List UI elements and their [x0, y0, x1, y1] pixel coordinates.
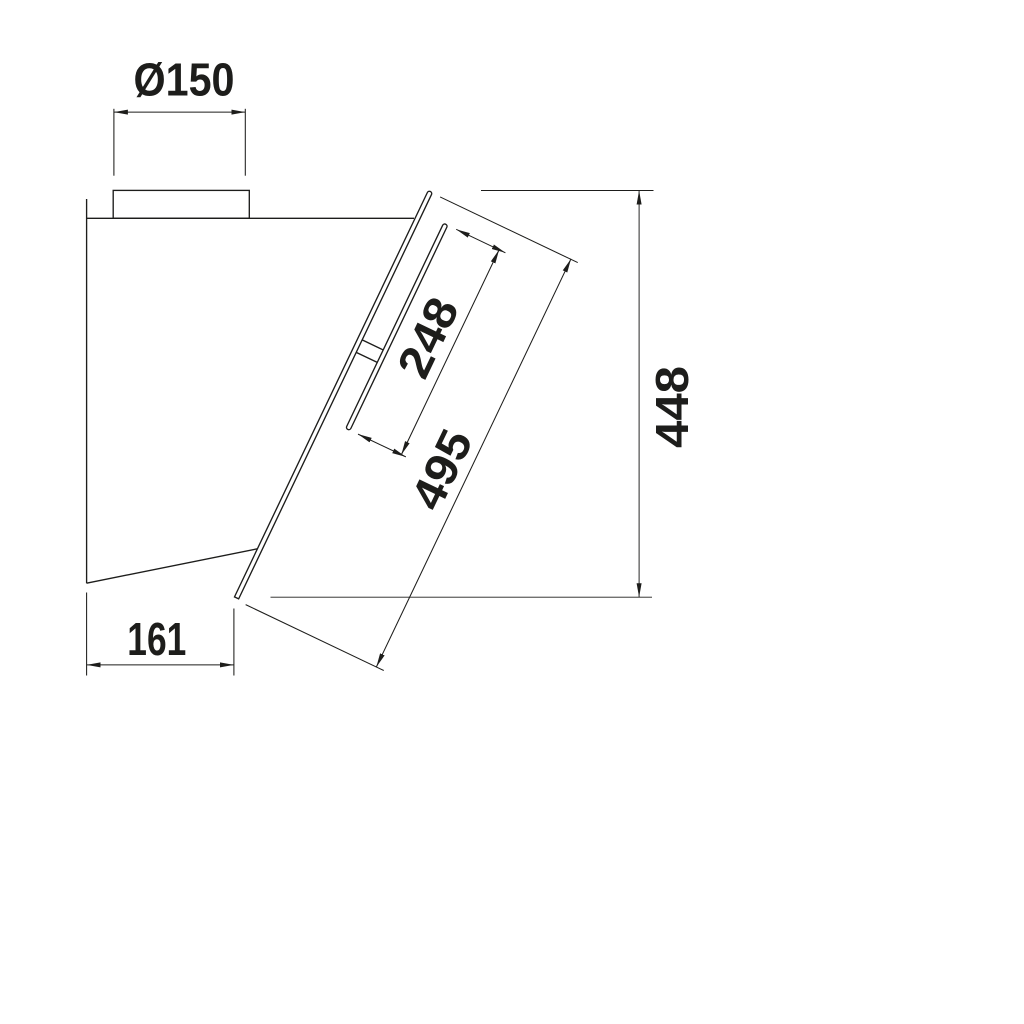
svg-text:161: 161 [127, 613, 186, 665]
svg-text:448: 448 [646, 366, 698, 448]
svg-text:Ø150: Ø150 [134, 53, 235, 105]
